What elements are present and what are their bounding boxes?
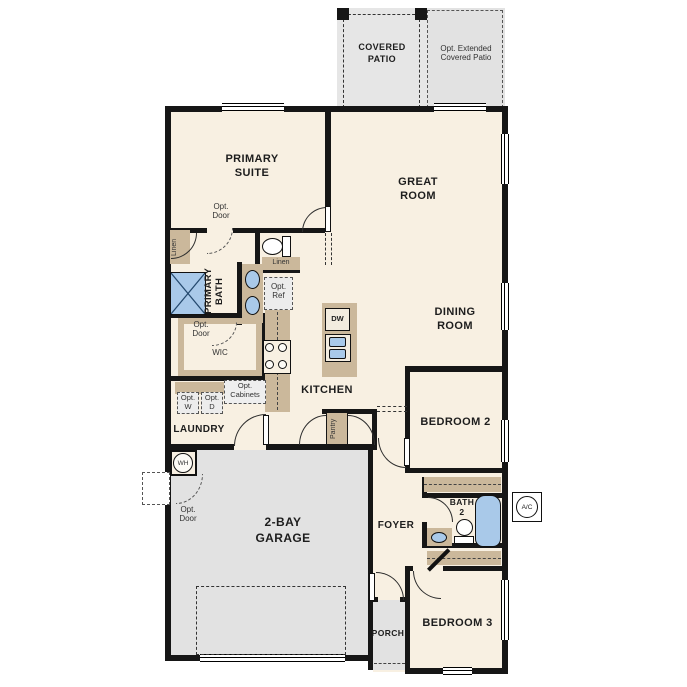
floor-plan: Linen PRIMARY BATH Linen WIC Opt. Door O… <box>0 0 687 687</box>
opt-dryer-label: Opt. D <box>202 394 222 411</box>
opt-cabinets-label: Opt. Cabinets <box>225 382 265 399</box>
wall <box>502 330 508 420</box>
wall <box>502 184 508 283</box>
covered-patio-label: COVERED PATIO <box>352 42 412 65</box>
ac-unit: A/C <box>516 496 538 518</box>
wall <box>255 232 260 268</box>
bathtub <box>475 495 501 547</box>
toilet <box>262 238 283 255</box>
wall <box>405 366 508 372</box>
window <box>501 283 509 330</box>
patio-post <box>415 8 427 20</box>
toilet-tank <box>454 536 474 544</box>
wall <box>165 106 222 112</box>
toilet-tank <box>282 236 291 257</box>
door-leaf <box>404 438 410 466</box>
wall <box>405 566 413 571</box>
linen-right-label: Linen <box>263 259 299 267</box>
wall <box>284 106 434 112</box>
wall <box>502 106 508 134</box>
wall <box>472 668 508 674</box>
sink-basin <box>329 337 346 347</box>
wall <box>405 468 508 473</box>
wic-label: WIC <box>204 348 236 357</box>
burner <box>265 360 274 369</box>
wall <box>405 668 443 674</box>
burner <box>278 360 287 369</box>
porch-label: PORCH <box>370 628 406 639</box>
primary-suite-label: PRIMARY SUITE <box>212 152 292 181</box>
window <box>443 667 472 675</box>
porch-edge <box>374 663 405 664</box>
pantry-label: Pantry <box>330 413 345 444</box>
opt-door-garage-label: Opt. Door <box>173 505 203 523</box>
sliding-glass-door <box>434 103 486 111</box>
patio-post <box>337 8 349 20</box>
optional-door-landing <box>142 472 170 505</box>
garage-door-outline <box>196 586 346 655</box>
sink <box>245 270 260 289</box>
cased-opening <box>377 406 407 412</box>
garage-door-opening <box>200 654 345 662</box>
door-leaf <box>325 206 331 232</box>
door-leaf <box>263 415 269 445</box>
shower-x-icon <box>171 273 205 314</box>
opt-washer-label: Opt. W <box>178 394 198 411</box>
bedroom3-label: BEDROOM 3 <box>410 616 505 630</box>
dining-room-label: DINING ROOM <box>425 305 485 334</box>
opt-ref-label: Opt. Ref <box>265 282 292 300</box>
sink <box>245 296 260 315</box>
toilet <box>456 519 473 536</box>
garage-label: 2-BAY GARAGE <box>233 515 333 546</box>
window <box>501 134 509 184</box>
opt-door-suite-label: Opt. Door <box>207 202 235 220</box>
laundry-label: LAUNDRY <box>166 423 232 436</box>
opt-door-wic-label: Opt. Door <box>188 320 214 338</box>
window <box>501 580 509 640</box>
front-door-leaf <box>369 573 375 601</box>
sink-basin <box>329 349 346 359</box>
bedroom2-label: BEDROOM 2 <box>408 415 503 429</box>
water-heater: WH <box>173 453 193 473</box>
shower <box>170 272 206 315</box>
kitchen-label: KITCHEN <box>296 383 358 397</box>
closet-rod <box>424 484 501 485</box>
cased-opening <box>325 233 332 265</box>
wall <box>165 655 200 661</box>
extended-patio-label: Opt. Extended Covered Patio <box>430 44 502 62</box>
wall <box>502 462 508 580</box>
dishwasher-label: DW <box>326 315 349 324</box>
wall <box>443 566 508 571</box>
foyer-label: FOYER <box>373 519 419 532</box>
great-room-label: GREAT ROOM <box>387 175 449 204</box>
sink <box>431 532 447 543</box>
wall <box>325 110 331 206</box>
burner <box>278 343 287 352</box>
window <box>222 103 284 111</box>
burner <box>265 343 274 352</box>
